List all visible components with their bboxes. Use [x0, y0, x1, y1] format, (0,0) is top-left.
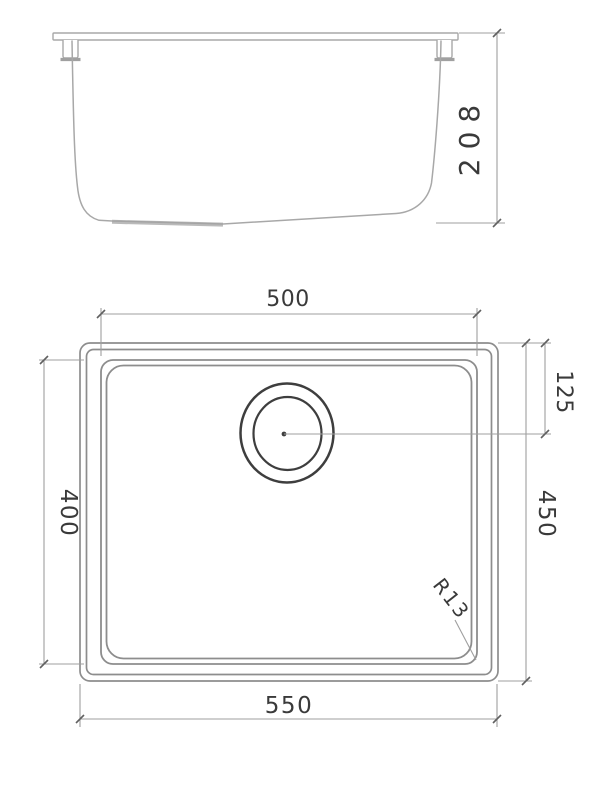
bowl-bottom-rect: [107, 366, 472, 659]
drawing-canvas: 208 500 550 400 450 125 R13: [0, 0, 606, 800]
sink-technical-drawing: 208 500 550 400 450 125 R13: [0, 0, 606, 800]
sink-outer-rect: [80, 343, 498, 681]
mounting-clip-left: [63, 40, 78, 58]
elevation-view: [53, 33, 458, 225]
sink-body-outline: [72, 41, 441, 224]
mounting-clip-right: [437, 40, 452, 58]
sink-rim-profile: [53, 33, 458, 40]
bowl-opening-rect: [101, 360, 477, 664]
plan-view: [80, 343, 498, 681]
sink-rim-inner-line: [87, 350, 492, 675]
bowl-length-label: 400: [55, 489, 81, 537]
outer-length-label: 450: [533, 490, 559, 538]
drain: [241, 384, 334, 483]
corner-radius-label: R13: [428, 573, 475, 624]
bowl-width-label: 500: [266, 287, 310, 312]
drain-offset-label: 125: [551, 370, 576, 414]
dim-drain-offset: [284, 339, 551, 438]
depth-label: 208: [453, 96, 486, 176]
outer-width-label: 550: [265, 693, 313, 719]
sink-base-pad: [112, 222, 223, 225]
